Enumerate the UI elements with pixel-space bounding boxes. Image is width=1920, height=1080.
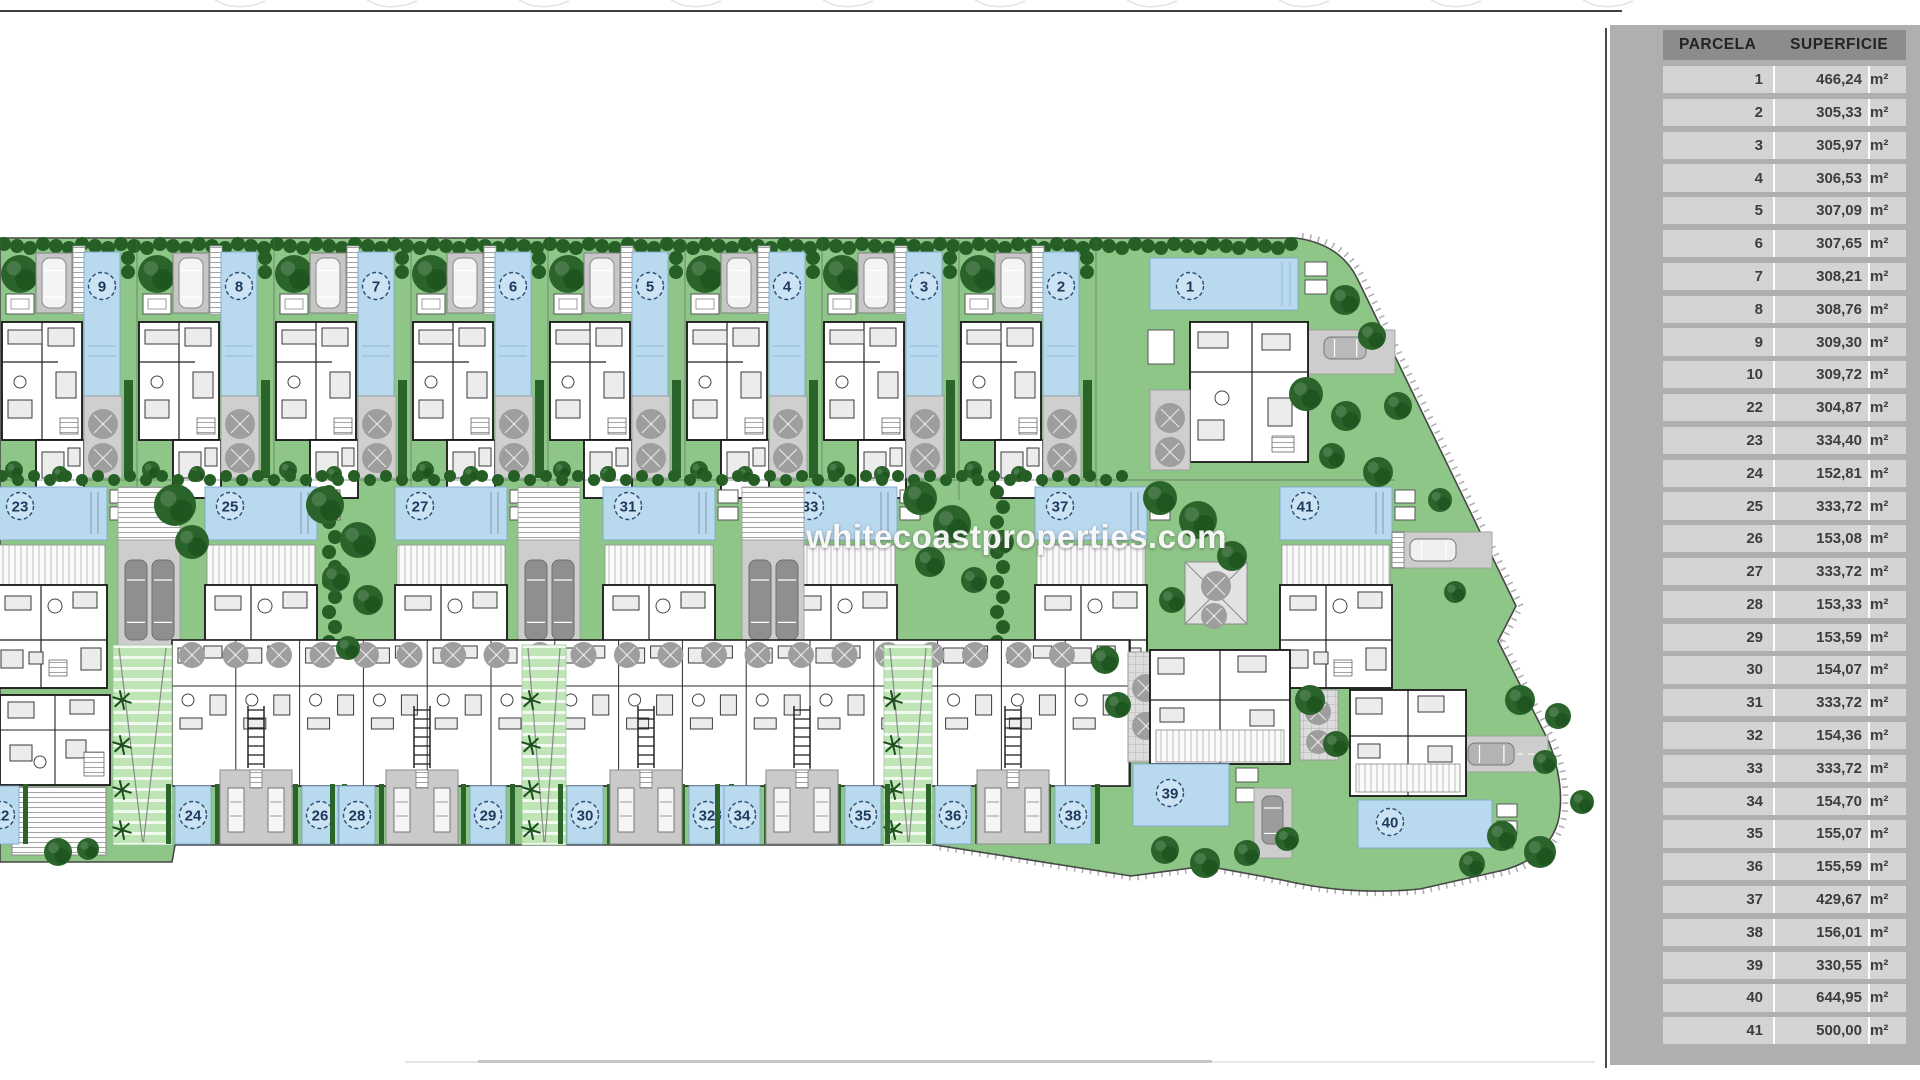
table-row: 35155,07m²: [1663, 820, 1906, 847]
parcel-area: 156,01: [1775, 919, 1868, 946]
svg-text:9: 9: [98, 279, 106, 296]
parcel-area: 153,33: [1775, 591, 1868, 618]
parcel-number: 8: [1663, 296, 1773, 323]
area-unit: m²: [1870, 853, 1906, 880]
table-row: 41500,00m²: [1663, 1017, 1906, 1044]
svg-text:7: 7: [372, 279, 380, 296]
svg-text:1: 1: [1186, 279, 1194, 296]
parcel-area: 333,72: [1775, 492, 1868, 519]
area-unit: m²: [1870, 820, 1906, 847]
svg-text:28: 28: [349, 808, 366, 825]
parcel-area: 307,09: [1775, 197, 1868, 224]
svg-text:6: 6: [509, 279, 517, 296]
parcel-area: 308,76: [1775, 296, 1868, 323]
table-row: 39330,55m²: [1663, 952, 1906, 979]
parcel-area: 429,67: [1775, 886, 1868, 913]
table-header: PARCELA SUPERFICIE: [1663, 30, 1906, 60]
table-row: 1466,24m²: [1663, 66, 1906, 93]
table-row: 23334,40m²: [1663, 427, 1906, 454]
svg-text:4: 4: [783, 279, 792, 296]
svg-text:37: 37: [1052, 499, 1069, 516]
parcel-number: 9: [1663, 328, 1773, 355]
sheet-bottom-border-faint: [1212, 1061, 1595, 1063]
parcel-number: 29: [1663, 624, 1773, 651]
table-row: 37429,67m²: [1663, 886, 1906, 913]
parcel-number: 40: [1663, 984, 1773, 1011]
table-row: 31333,72m²: [1663, 689, 1906, 716]
svg-text:41: 41: [1297, 499, 1314, 516]
svg-text:3: 3: [920, 279, 928, 296]
parcel-area: 644,95: [1775, 984, 1868, 1011]
site-plan-sheet: 9876543212325273133374122242628293032343…: [0, 0, 1920, 1080]
parcel-area: 155,59: [1775, 853, 1868, 880]
parcel-number: 3: [1663, 132, 1773, 159]
table-row: 34154,70m²: [1663, 788, 1906, 815]
area-unit: m²: [1870, 624, 1906, 651]
table-row: 30154,07m²: [1663, 656, 1906, 683]
area-unit: m²: [1870, 591, 1906, 618]
area-unit: m²: [1870, 460, 1906, 487]
area-unit: m²: [1870, 788, 1906, 815]
svg-text:36: 36: [945, 808, 962, 825]
parcel-area: 333,72: [1775, 689, 1868, 716]
parcel-number: 33: [1663, 755, 1773, 782]
sheet-margin-arcs: [215, 0, 1633, 7]
parcel-number: 32: [1663, 722, 1773, 749]
svg-text:31: 31: [620, 499, 637, 516]
svg-text:35: 35: [855, 808, 872, 825]
svg-text:23: 23: [12, 499, 29, 516]
svg-text:8: 8: [235, 279, 243, 296]
parcel-area: 500,00: [1775, 1017, 1868, 1044]
table-row: 2305,33m²: [1663, 99, 1906, 126]
parcel-area: 154,07: [1775, 656, 1868, 683]
green-stair-walkway: [883, 645, 932, 845]
green-stair-walkway: [112, 645, 172, 845]
svg-text:25: 25: [222, 499, 239, 516]
table-row: 7308,21m²: [1663, 263, 1906, 290]
sheet-bottom-border-faint: [405, 1061, 478, 1063]
area-unit: m²: [1870, 886, 1906, 913]
table-row: 36155,59m²: [1663, 853, 1906, 880]
parcel-area: 307,65: [1775, 230, 1868, 257]
area-unit: m²: [1870, 427, 1906, 454]
parcel-number: 26: [1663, 525, 1773, 552]
area-unit: m²: [1870, 99, 1906, 126]
table-row: 29153,59m²: [1663, 624, 1906, 651]
svg-text:34: 34: [734, 808, 751, 825]
svg-text:2: 2: [1057, 279, 1065, 296]
parcel-number: 10: [1663, 361, 1773, 388]
area-unit: m²: [1870, 755, 1906, 782]
table-row: 26153,08m²: [1663, 525, 1906, 552]
area-unit: m²: [1870, 952, 1906, 979]
area-unit: m²: [1870, 689, 1906, 716]
table-row: 9309,30m²: [1663, 328, 1906, 355]
header-parcela: PARCELA: [1663, 36, 1772, 54]
table-row: 38156,01m²: [1663, 919, 1906, 946]
area-unit: m²: [1870, 984, 1906, 1011]
parcel-number: 1: [1663, 66, 1773, 93]
table-row: 22304,87m²: [1663, 394, 1906, 421]
parcel-area: 304,87: [1775, 394, 1868, 421]
parcel-area: 153,59: [1775, 624, 1868, 651]
parcel-number: 39: [1663, 952, 1773, 979]
parcel-area: 305,97: [1775, 132, 1868, 159]
parcel-area: 154,70: [1775, 788, 1868, 815]
table-row: 27333,72m²: [1663, 558, 1906, 585]
tree-grate-patio: [1185, 562, 1247, 629]
table-row: 25333,72m²: [1663, 492, 1906, 519]
table-row: 5307,09m²: [1663, 197, 1906, 224]
area-unit: m²: [1870, 263, 1906, 290]
svg-text:40: 40: [1382, 815, 1399, 832]
svg-text:32: 32: [699, 808, 716, 825]
parcel-number: 22: [1663, 394, 1773, 421]
area-unit: m²: [1870, 132, 1906, 159]
table-rows: 1466,24m²2305,33m²3305,97m²4306,53m²5307…: [1663, 66, 1906, 1044]
area-unit: m²: [1870, 66, 1906, 93]
area-unit: m²: [1870, 525, 1906, 552]
table-row: 8308,76m²: [1663, 296, 1906, 323]
parcel-number: 37: [1663, 886, 1773, 913]
panel-border-line: [1605, 28, 1607, 1068]
table-row: 40644,95m²: [1663, 984, 1906, 1011]
parcel-number: 23: [1663, 427, 1773, 454]
svg-text:24: 24: [185, 808, 202, 825]
area-unit: m²: [1870, 230, 1906, 257]
parcel-number: 30: [1663, 656, 1773, 683]
area-unit: m²: [1870, 722, 1906, 749]
access-road-41: [1392, 532, 1492, 568]
parcel-number: 7: [1663, 263, 1773, 290]
table-row: 24152,81m²: [1663, 460, 1906, 487]
table-row: 10309,72m²: [1663, 361, 1906, 388]
area-unit: m²: [1870, 361, 1906, 388]
area-unit: m²: [1870, 492, 1906, 519]
parcel-area: 309,30: [1775, 328, 1868, 355]
parcel-number: 35: [1663, 820, 1773, 847]
table-row: 28153,33m²: [1663, 591, 1906, 618]
svg-text:22: 22: [0, 808, 9, 825]
parcel-number: 31: [1663, 689, 1773, 716]
svg-text:30: 30: [577, 808, 594, 825]
table-row: 6307,65m²: [1663, 230, 1906, 257]
area-unit: m²: [1870, 558, 1906, 585]
area-unit: m²: [1870, 919, 1906, 946]
parcel-number: 24: [1663, 460, 1773, 487]
parcel-area: 308,21: [1775, 263, 1868, 290]
area-unit: m²: [1870, 394, 1906, 421]
area-unit: m²: [1870, 1017, 1906, 1044]
parcel-number: 38: [1663, 919, 1773, 946]
parcel-area-table: PARCELA SUPERFICIE 1466,24m²2305,33m²330…: [1663, 30, 1906, 1050]
bottom-pool: 22: [0, 784, 28, 844]
area-unit: m²: [1870, 656, 1906, 683]
svg-text:27: 27: [412, 499, 429, 516]
sheet-top-border: [0, 10, 1622, 12]
watermark: whitecoastproperties.com: [806, 518, 1126, 556]
parcel-area: 333,72: [1775, 558, 1868, 585]
area-table-panel: PARCELA SUPERFICIE 1466,24m²2305,33m²330…: [1610, 25, 1920, 1065]
parcel-area: 306,53: [1775, 164, 1868, 191]
parcel-area: 309,72: [1775, 361, 1868, 388]
parcel-area: 153,08: [1775, 525, 1868, 552]
area-unit: m²: [1870, 197, 1906, 224]
parcel-number: 5: [1663, 197, 1773, 224]
parcel-number: 41: [1663, 1017, 1773, 1044]
header-superficie: SUPERFICIE: [1772, 36, 1906, 54]
svg-text:39: 39: [1162, 786, 1179, 803]
table-row: 4306,53m²: [1663, 164, 1906, 191]
table-row: 32154,36m²: [1663, 722, 1906, 749]
svg-text:38: 38: [1065, 808, 1082, 825]
parcel-area: 152,81: [1775, 460, 1868, 487]
svg-text:26: 26: [312, 808, 329, 825]
parcel-number: 25: [1663, 492, 1773, 519]
sheet-bottom-border: [478, 1060, 1212, 1063]
svg-text:5: 5: [646, 279, 654, 296]
parcel-number: 4: [1663, 164, 1773, 191]
parcel-area: 155,07: [1775, 820, 1868, 847]
parcel-area: 330,55: [1775, 952, 1868, 979]
area-unit: m²: [1870, 164, 1906, 191]
parcel-number: 27: [1663, 558, 1773, 585]
parcel-area: 334,40: [1775, 427, 1868, 454]
parcel-area: 154,36: [1775, 722, 1868, 749]
parcel-number: 34: [1663, 788, 1773, 815]
svg-text:29: 29: [480, 808, 497, 825]
parcel-number: 6: [1663, 230, 1773, 257]
area-unit: m²: [1870, 328, 1906, 355]
parcel-area: 466,24: [1775, 66, 1868, 93]
parcel-number: 28: [1663, 591, 1773, 618]
table-row: 33333,72m²: [1663, 755, 1906, 782]
table-row: 3305,97m²: [1663, 132, 1906, 159]
parcel-number: 36: [1663, 853, 1773, 880]
parcel-area: 333,72: [1775, 755, 1868, 782]
parcel-number: 2: [1663, 99, 1773, 126]
parcel-area: 305,33: [1775, 99, 1868, 126]
area-unit: m²: [1870, 296, 1906, 323]
